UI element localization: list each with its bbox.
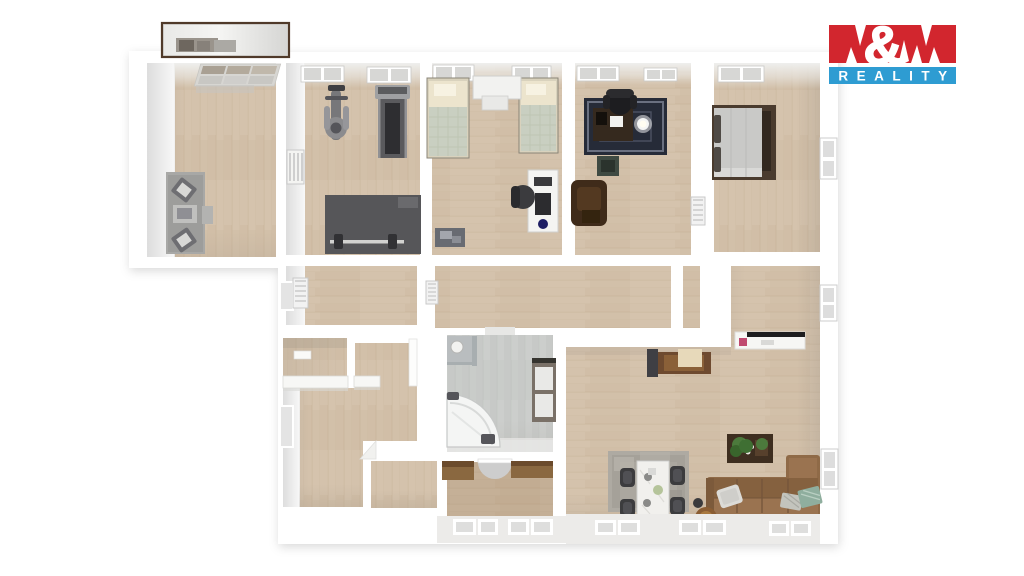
svg-text:REALITY: REALITY (838, 69, 955, 84)
